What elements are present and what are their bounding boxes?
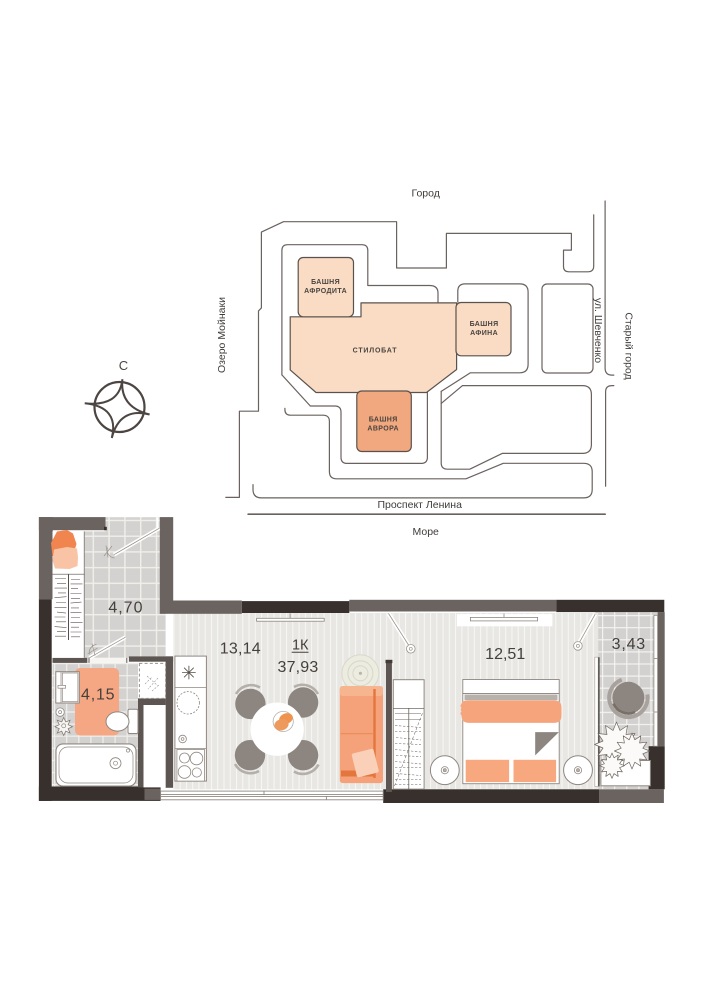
svg-text:АФРОДИТА: АФРОДИТА	[304, 288, 347, 295]
svg-text:4,15: 4,15	[81, 687, 115, 704]
svg-text:АФИНА: АФИНА	[470, 330, 498, 337]
svg-text:Проспект Ленина: Проспект Ленина	[377, 499, 462, 511]
svg-text:С: С	[119, 358, 128, 373]
svg-text:1К: 1К	[292, 638, 309, 654]
svg-text:Старый город: Старый город	[623, 312, 635, 379]
svg-text:БАШНЯ: БАШНЯ	[369, 417, 398, 424]
svg-text:СТИЛОБАТ: СТИЛОБАТ	[353, 348, 398, 355]
svg-text:БАШНЯ: БАШНЯ	[311, 279, 340, 286]
svg-text:АВРОРА: АВРОРА	[367, 426, 399, 433]
svg-text:37,93: 37,93	[277, 659, 318, 676]
svg-text:13,14: 13,14	[220, 640, 261, 657]
svg-text:БАШНЯ: БАШНЯ	[470, 321, 499, 328]
svg-text:3,43: 3,43	[612, 636, 646, 653]
svg-text:Город: Город	[411, 188, 439, 200]
svg-text:Море: Море	[413, 526, 440, 538]
svg-text:12,51: 12,51	[485, 646, 525, 663]
svg-text:Озеро Мойнаки: Озеро Мойнаки	[216, 297, 228, 373]
svg-text:ул. Шевченко: ул. Шевченко	[592, 298, 604, 363]
svg-text:4,70: 4,70	[108, 600, 143, 617]
